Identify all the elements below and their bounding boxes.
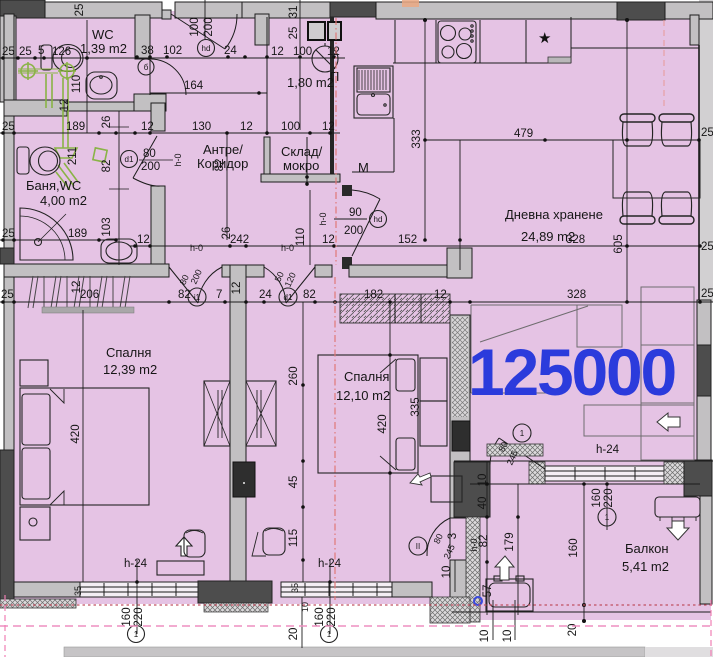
- svg-text:h-0: h-0: [173, 153, 183, 166]
- svg-text:d1: d1: [284, 293, 293, 302]
- svg-text:Антре/: Антре/: [203, 142, 243, 157]
- svg-text:164: 164: [184, 80, 204, 92]
- svg-text:38: 38: [141, 45, 154, 57]
- svg-text:25: 25: [19, 46, 32, 58]
- svg-text:20: 20: [288, 628, 300, 641]
- svg-text:12,10 m2: 12,10 m2: [336, 388, 390, 403]
- svg-text:25: 25: [701, 241, 713, 253]
- svg-text:35: 35: [73, 586, 83, 596]
- svg-text:5: 5: [38, 45, 44, 57]
- svg-text:82: 82: [478, 535, 490, 548]
- svg-text:115: 115: [288, 529, 300, 547]
- svg-text:189: 189: [68, 228, 87, 240]
- svg-text:25: 25: [74, 4, 86, 17]
- svg-text:479: 479: [514, 128, 533, 140]
- svg-text:12: 12: [71, 281, 83, 294]
- svg-text:12,39 m2: 12,39 m2: [103, 362, 157, 377]
- svg-text:25: 25: [2, 46, 15, 58]
- svg-text:90: 90: [349, 207, 362, 219]
- svg-text:82: 82: [101, 160, 113, 173]
- svg-text:82: 82: [214, 159, 226, 172]
- svg-text:Спалня: Спалня: [106, 345, 151, 360]
- svg-text:мокро: мокро: [283, 158, 319, 173]
- svg-text:4,00 m2: 4,00 m2: [40, 193, 87, 208]
- svg-text:12: 12: [434, 289, 447, 301]
- svg-text:328: 328: [567, 289, 586, 301]
- svg-text:160: 160: [121, 607, 133, 626]
- svg-text:200: 200: [344, 225, 363, 237]
- svg-text:605: 605: [613, 234, 625, 253]
- svg-text:110: 110: [71, 75, 83, 93]
- svg-text:125000: 125000: [468, 335, 675, 409]
- svg-text:5,41 m2: 5,41 m2: [622, 559, 669, 574]
- svg-text:220: 220: [603, 488, 615, 507]
- svg-text:57: 57: [482, 585, 494, 598]
- svg-text:h-24: h-24: [318, 558, 342, 570]
- svg-text:Баня,WC: Баня,WC: [26, 178, 81, 193]
- svg-text:12: 12: [322, 234, 335, 246]
- svg-text:160: 160: [568, 538, 580, 557]
- svg-text:25: 25: [2, 228, 15, 240]
- svg-text:Дневна хранене: Дневна хранене: [505, 207, 603, 222]
- svg-text:182: 182: [364, 289, 383, 301]
- svg-text:1: 1: [605, 513, 610, 522]
- svg-text:h-0: h-0: [190, 243, 203, 253]
- svg-text:100: 100: [281, 121, 300, 133]
- svg-text:80: 80: [143, 148, 156, 160]
- svg-text:24: 24: [259, 289, 272, 301]
- svg-text:3: 3: [447, 533, 459, 539]
- svg-text:1,39 m2: 1,39 m2: [80, 41, 127, 56]
- svg-text:10: 10: [477, 474, 489, 487]
- svg-text:h-24: h-24: [124, 558, 148, 570]
- svg-text:WC: WC: [92, 27, 114, 42]
- svg-text:1: 1: [134, 630, 139, 639]
- svg-text:189: 189: [66, 121, 85, 133]
- svg-text:12: 12: [271, 46, 284, 58]
- svg-text:i1: i1: [194, 293, 201, 302]
- svg-text:420: 420: [70, 424, 82, 443]
- svg-text:102: 102: [163, 45, 182, 57]
- svg-text:160: 160: [314, 607, 326, 626]
- svg-text:25: 25: [288, 27, 300, 40]
- svg-text:II: II: [416, 542, 420, 551]
- svg-text:П: П: [330, 69, 339, 84]
- svg-text:h-0: h-0: [281, 243, 294, 253]
- svg-text:1: 1: [327, 630, 332, 639]
- svg-text:12: 12: [231, 282, 243, 295]
- svg-text:100: 100: [189, 17, 201, 36]
- svg-text:200: 200: [203, 17, 215, 36]
- svg-text:Склад/: Склад/: [281, 144, 323, 159]
- svg-text:420: 420: [377, 414, 389, 433]
- svg-text:126: 126: [52, 46, 71, 58]
- svg-text:Балкон: Балкон: [625, 541, 669, 556]
- svg-text:35: 35: [290, 583, 300, 593]
- svg-text:25: 25: [701, 127, 713, 139]
- svg-text:б: б: [144, 63, 149, 72]
- svg-text:211: 211: [67, 147, 79, 165]
- svg-text:45: 45: [288, 476, 300, 489]
- svg-text:335: 335: [410, 397, 422, 416]
- svg-text:12: 12: [137, 234, 150, 246]
- svg-text:220: 220: [326, 607, 338, 626]
- svg-text:26: 26: [101, 116, 113, 129]
- svg-text:hd: hd: [202, 44, 211, 53]
- svg-text:179: 179: [504, 532, 516, 551]
- svg-text:12: 12: [322, 121, 335, 133]
- svg-text:25: 25: [701, 288, 713, 300]
- svg-text:1,80 m2: 1,80 m2: [287, 75, 334, 90]
- svg-text:10: 10: [479, 630, 491, 643]
- svg-text:12: 12: [141, 121, 154, 133]
- svg-text:hd: hd: [374, 215, 383, 224]
- svg-text:1: 1: [520, 429, 525, 438]
- svg-text:h-0: h-0: [318, 212, 328, 225]
- svg-text:d1: d1: [125, 155, 134, 164]
- svg-text:Спалня: Спалня: [344, 369, 389, 384]
- svg-text:82: 82: [178, 289, 191, 301]
- svg-text:152: 152: [398, 234, 417, 246]
- svg-text:10: 10: [441, 566, 453, 579]
- svg-text:160: 160: [591, 488, 603, 507]
- svg-text:★: ★: [538, 30, 551, 47]
- svg-text:10: 10: [502, 630, 514, 643]
- svg-text:М: М: [358, 160, 369, 175]
- svg-text:h-24: h-24: [596, 444, 620, 456]
- svg-text:260: 260: [288, 366, 300, 385]
- svg-text:130: 130: [192, 121, 211, 133]
- svg-text:328: 328: [566, 234, 585, 246]
- svg-text:12: 12: [240, 121, 253, 133]
- svg-text:82: 82: [303, 289, 316, 301]
- svg-text:26: 26: [221, 227, 233, 240]
- svg-text:12: 12: [59, 99, 71, 112]
- svg-text:100: 100: [293, 46, 312, 58]
- svg-text:25: 25: [2, 121, 15, 133]
- svg-text:h-0: h-0: [469, 538, 479, 551]
- svg-text:103: 103: [101, 217, 113, 236]
- svg-text:333: 333: [411, 129, 423, 148]
- svg-text:31: 31: [288, 6, 300, 19]
- svg-text:40: 40: [477, 497, 489, 510]
- svg-text:110: 110: [295, 228, 307, 246]
- svg-text:12: 12: [327, 46, 340, 58]
- svg-text:200: 200: [141, 161, 160, 173]
- svg-text:24: 24: [224, 45, 237, 57]
- svg-text:10: 10: [300, 602, 310, 612]
- svg-text:25: 25: [1, 289, 14, 301]
- svg-text:7: 7: [216, 289, 222, 301]
- svg-text:220: 220: [133, 607, 145, 626]
